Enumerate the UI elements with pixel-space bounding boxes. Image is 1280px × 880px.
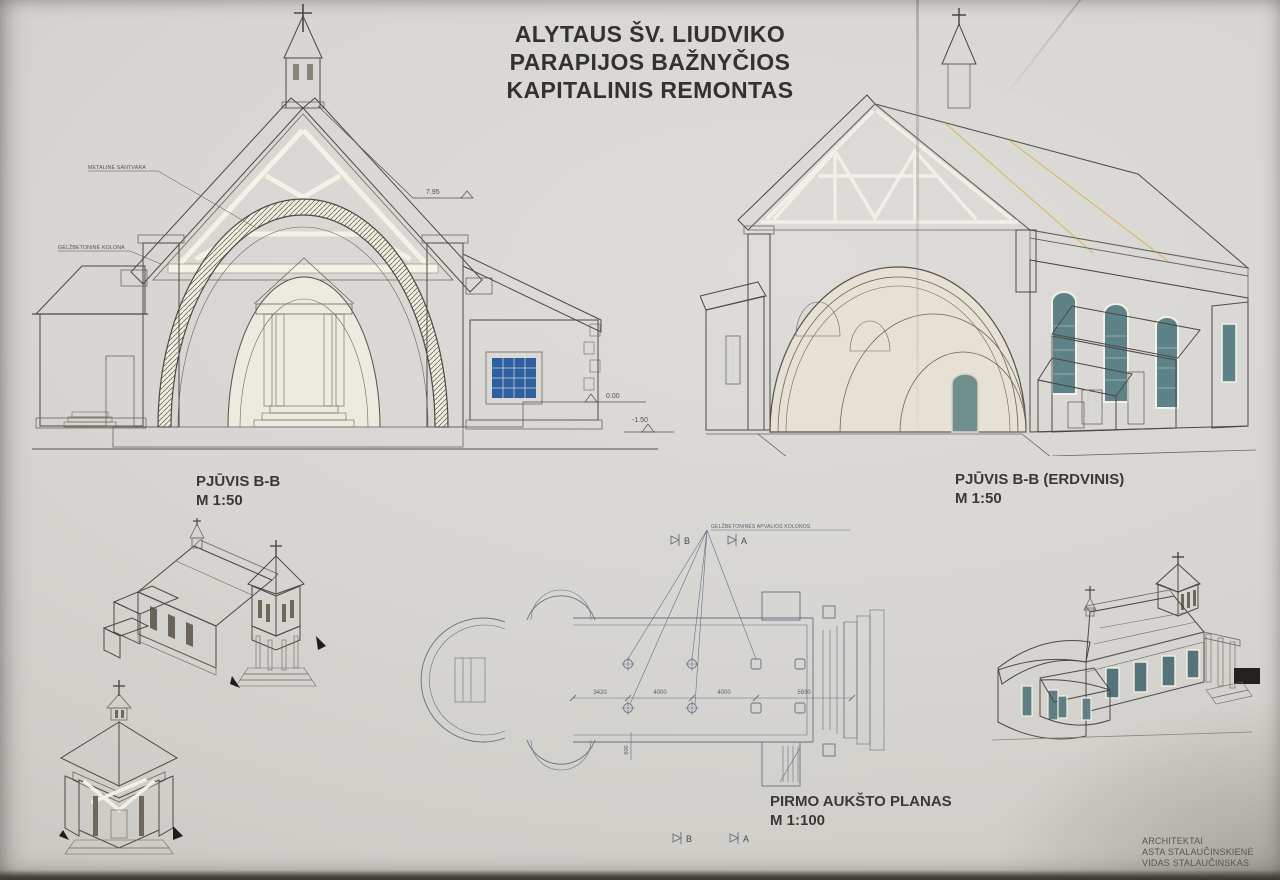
level-zero-text: 0.00: [606, 393, 620, 400]
section-bb-3d-scale: M 1:50: [955, 489, 1124, 508]
apse: [998, 640, 1090, 738]
floor-plan-drawing: GELŽBETONINĖS APVALIOS KOLONOS B A B A: [405, 518, 905, 863]
ground-line: [992, 732, 1252, 740]
nave-window: [1156, 317, 1178, 408]
nave-wall: [1086, 632, 1204, 712]
plan-annotation: GELŽBETONINĖS APVALIOS KOLONOS: [628, 522, 850, 704]
column-callout: GELŽBETONINĖ KOLONA: [58, 243, 125, 251]
credits-line-1: ARCHITEKTAI: [1142, 836, 1254, 847]
round-columns-callout: GELŽBETONINĖS APVALIOS KOLONOS: [711, 522, 811, 530]
cupola-and-cross: [107, 680, 131, 720]
apse-walls: [421, 590, 595, 770]
marker-a-top: A: [741, 536, 747, 546]
dim-vertical: 600: [624, 745, 630, 754]
section-bb-drawing: 7.95 0.00 -1.50 METALINĖ SANTVARA GELŽBE…: [18, 2, 678, 454]
interior-columns: [621, 657, 805, 715]
dimension-line: 3420 4000 4000 5930 600: [570, 690, 855, 760]
nave-window: [1052, 292, 1076, 394]
credits-line-2: ASTA STALAUČINSKIENĖ: [1142, 847, 1254, 858]
entrance-canopy: [1234, 668, 1260, 684]
dim-3420: 3420: [593, 690, 607, 696]
entrance-steps: [823, 606, 884, 756]
dim-4000-2: 4000: [717, 690, 731, 696]
marker-a-bottom: A: [743, 834, 749, 844]
cut-gable-truss: [748, 104, 1030, 230]
spire-and-cross: [942, 8, 976, 108]
cutaway-interior: [79, 780, 159, 848]
hip-roof: [61, 722, 177, 786]
bell-tower: [1156, 552, 1200, 616]
front-portico: [230, 626, 326, 688]
dim-5930: 5930: [797, 690, 811, 696]
level-ridge-text: 7.95: [426, 189, 440, 196]
side-chapel: [104, 586, 178, 658]
front-portico: [1204, 632, 1260, 704]
paper-bottom-edge: [0, 870, 1280, 880]
nave-roof: [138, 540, 278, 626]
right-annex: [463, 254, 602, 429]
scanned-architectural-sheet: ALYTAUS ŠV. LIUDVIKO PARAPIJOS BAŽNYČIOS…: [0, 0, 1280, 880]
foundation: [32, 427, 658, 449]
inner-sanctuary: [228, 258, 380, 427]
section-bb-scale: M 1:50: [196, 491, 280, 510]
section-bb-3d-label: PJŪVIS B-B (ERDVINIS) M 1:50: [955, 470, 1124, 508]
spire-and-cross: [282, 4, 324, 108]
steps: [59, 826, 183, 854]
apse-window: [952, 374, 978, 432]
nave-window: [1104, 304, 1128, 402]
nave-walls: [573, 618, 813, 742]
marker-b-bottom: B: [686, 834, 692, 844]
right-stone-pylon: [1212, 302, 1248, 428]
nave-wall: [138, 592, 216, 675]
axonometric-apse-view: [982, 550, 1267, 755]
paper-crease-vertical: [916, 0, 919, 460]
left-annex: [32, 266, 148, 428]
side-wall: [1030, 238, 1248, 432]
section-bb-3d-drawing: [700, 6, 1260, 456]
far-left-annex: [700, 282, 766, 430]
barrel-vault: [770, 267, 1026, 432]
marker-b-top: B: [684, 536, 690, 546]
section-bb-3d-title: PJŪVIS B-B (ERDVINIS): [955, 470, 1124, 489]
credits-line-3: VIDAS STALAUČINSKAS: [1142, 858, 1254, 869]
main-roof: [738, 95, 1248, 276]
truss-callout: METALINĖ SANTVARA: [88, 164, 146, 171]
floor-hatch: [706, 434, 1256, 456]
axonometric-portico-view: [45, 678, 205, 858]
dim-4000-1: 4000: [653, 690, 667, 696]
section-bb-label: PJŪVIS B-B M 1:50: [196, 472, 280, 510]
bell-tower: [248, 540, 304, 636]
architect-credits: ARCHITEKTAI ASTA STALAUČINSKIENĖ VIDAS S…: [1142, 836, 1254, 869]
level-below-text: -1.50: [632, 417, 648, 424]
section-markers: B A B A: [671, 534, 749, 844]
section-bb-title: PJŪVIS B-B: [196, 472, 280, 491]
side-rooms: [762, 592, 800, 786]
